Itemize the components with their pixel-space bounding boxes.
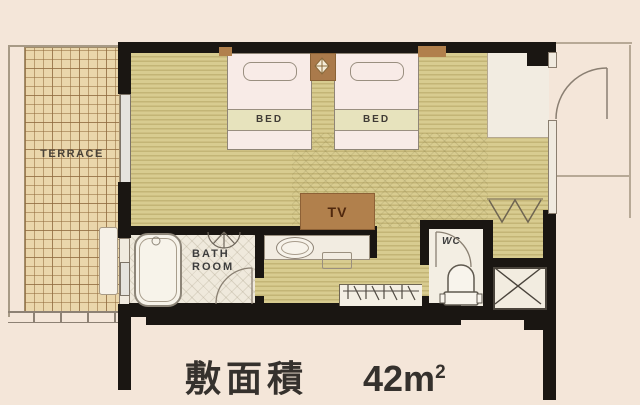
entrance-door-icon: [556, 68, 607, 119]
area-caption-label: 敷面積: [185, 350, 308, 402]
headboard-left: [219, 47, 232, 56]
wall-left-upper: [118, 42, 131, 94]
storage-box: [493, 267, 547, 310]
bed-right-foot: [335, 131, 418, 149]
corridor-top-line: [556, 42, 632, 44]
bed-left-label: BED: [228, 109, 311, 131]
bed-right-pillow: [350, 62, 404, 81]
bed-left-foot: [228, 131, 311, 149]
bed-right: BED: [334, 53, 419, 150]
ac-unit: [99, 227, 118, 295]
wall-bathroom-right-stub: [255, 296, 264, 308]
terrace-window: [120, 94, 131, 184]
corridor-outer-line: [629, 45, 631, 218]
headboard-right: [418, 46, 446, 57]
wall-top: [118, 42, 556, 53]
foyer-wall-lower: [548, 120, 557, 214]
bathtub: [134, 233, 182, 307]
tv-cabinet: TV: [300, 193, 375, 230]
tv-label: TV: [328, 204, 348, 220]
bed-right-label: BED: [335, 109, 418, 131]
wall-bottom-step: [146, 317, 461, 325]
corridor-step-line: [548, 175, 630, 177]
wall-wc-right: [483, 220, 493, 318]
bed-left: BED: [227, 53, 312, 150]
hanger-closet: [339, 284, 422, 306]
area-caption-value: 42m2: [363, 358, 446, 400]
stool: [322, 252, 352, 269]
wc-label: WC: [442, 236, 461, 247]
bathroom-window: [120, 262, 130, 296]
bathroom-label: BATH ROOM: [192, 248, 264, 274]
bed-right-blanket: [335, 54, 418, 109]
terrace-left-line: [8, 45, 10, 317]
nightstand: [310, 53, 336, 81]
bed-left-pillow: [243, 62, 297, 81]
terrace-label: TERRACE: [25, 148, 119, 160]
floor-plan: TERRACE BED BED: [0, 0, 640, 405]
sink-basin: [276, 237, 314, 259]
wall-wc-left-upper: [420, 220, 429, 265]
terrace-railing: [8, 311, 118, 323]
area-caption: 敷面積 42m2: [185, 350, 525, 402]
wall-storage-top: [483, 258, 543, 267]
bed-left-blanket: [228, 54, 311, 109]
foyer-wall-upper: [548, 52, 557, 68]
